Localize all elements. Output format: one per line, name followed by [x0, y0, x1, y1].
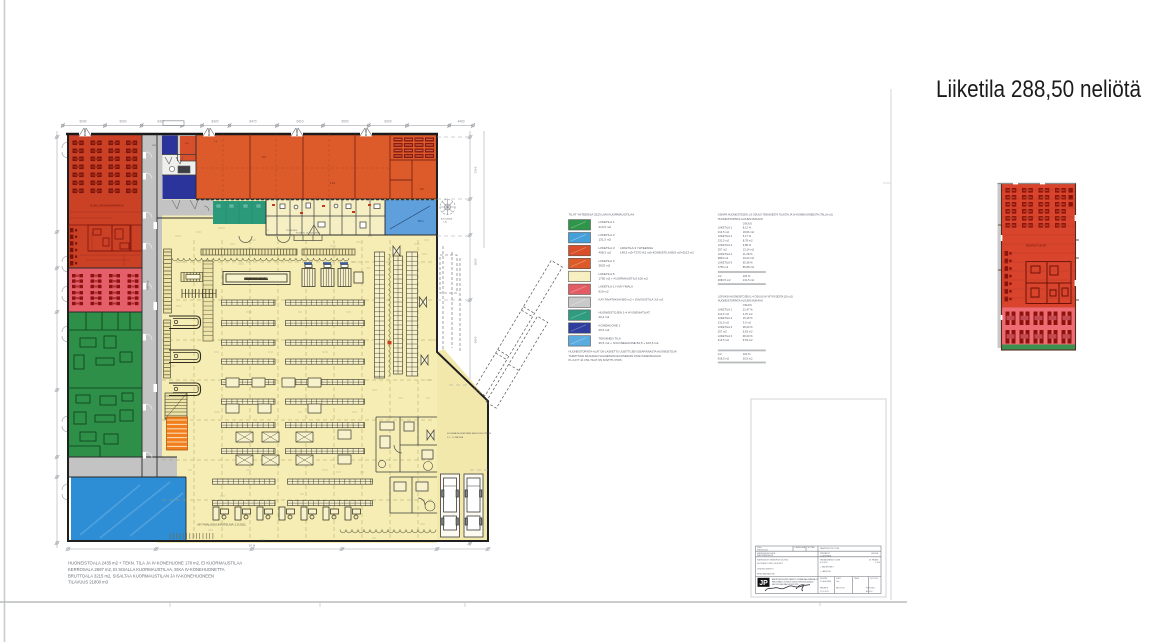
svg-text:20,5 m2: 20,5 m2: [599, 328, 610, 332]
svg-text:213,5 m2: 213,5 m2: [599, 225, 612, 229]
svg-text:JP: JP: [759, 580, 768, 587]
svg-text:AJOLUISKA: AJOLUISKA: [441, 218, 453, 221]
svg-text:K2: K2: [420, 187, 424, 191]
svg-text:LIIKETILA 1: LIIKETILA 1: [718, 225, 733, 229]
svg-text:9200: 9200: [474, 259, 478, 266]
svg-text:KUORMAUSLIIKENTEEN KATUJONO PI: KUORMAUSLIIKENTEEN KATUJONO PITUUS: [447, 432, 492, 435]
svg-text:SUUNN: SUUNN: [820, 578, 828, 580]
svg-text:85 m: 85 m: [418, 219, 424, 223]
svg-text:KESATILAT 140 AP: KESATILAT 140 AP: [1026, 245, 1047, 248]
svg-text:SPK: SPK: [185, 143, 190, 145]
svg-text:8200: 8200: [384, 120, 391, 124]
svg-text:20,2 m2: 20,2 m2: [599, 315, 610, 319]
svg-text:K3: K3: [262, 155, 266, 159]
svg-text:8420: 8420: [211, 120, 218, 124]
svg-text:100 %: 100 %: [743, 274, 751, 278]
svg-text:13,14 m2: 13,14 m2: [743, 247, 755, 251]
svg-text:131,5 m2: 131,5 m2: [718, 239, 730, 243]
svg-text:131,5 m2: 131,5 m2: [718, 321, 730, 325]
svg-text:LIIKETILA 1: LIIKETILA 1: [718, 307, 733, 311]
svg-text:5,63 m2: 5,63 m2: [743, 329, 753, 333]
svg-text:3823 m2: 3823 m2: [718, 256, 729, 260]
svg-text:1,2 - 1,2 METRIA: 1,2 - 1,2 METRIA: [447, 436, 464, 439]
svg-text:498,3 m2: 498,3 m2: [599, 251, 612, 255]
svg-text:LIIKETILA 2: LIIKETILA 2: [718, 316, 733, 320]
svg-text:1.61: 1.61: [330, 181, 336, 185]
svg-text:KAYTAVA: KAYTAVA: [147, 280, 150, 290]
svg-text:100 %: 100 %: [743, 352, 751, 356]
svg-text:918,5 m2: 918,5 m2: [718, 357, 730, 361]
svg-text:1:100: 1:100: [875, 562, 881, 564]
svg-text:HUONEISTOJEN OSUUDET: HUONEISTOJEN OSUUDET: [757, 563, 784, 565]
svg-text:213,5 m2: 213,5 m2: [718, 338, 730, 342]
svg-text:VSS: VSS: [152, 145, 157, 147]
svg-text:LEHTIA: LEHTIA: [871, 552, 879, 555]
svg-text:KAUPPAKESKUS: KAUPPAKESKUS: [757, 554, 774, 557]
svg-text:K-LUKU: K-LUKU: [820, 562, 828, 564]
svg-text:PL-KAYT JA VSS-TILAT ON SOVITT: PL-KAYT JA VSS-TILAT ON SOVITTU POIS: [569, 358, 622, 362]
svg-text:HUONEISTOPINTA-ALOJEN MUKAAN: HUONEISTOPINTA-ALOJEN MUKAAN: [718, 299, 763, 303]
svg-text:OSUUS: OSUUS: [743, 221, 752, 225]
svg-text:257 m2: 257 m2: [718, 247, 727, 251]
svg-text:85,88 m2: 85,88 m2: [743, 265, 755, 269]
svg-text:IS.SALI 140 ASIAKASPAIKKAA: IS.SALI 140 ASIAKASPAIKKAA: [90, 205, 124, 208]
svg-text:8410: 8410: [474, 167, 478, 174]
svg-text:LIIKETILA 3: LIIKETILA 3: [718, 325, 733, 329]
svg-text:m2: m2: [718, 274, 722, 278]
svg-text:LIIKETILA 4: LIIKETILA 4: [718, 252, 733, 256]
svg-text:15,18 %: 15,18 %: [743, 316, 753, 320]
svg-text:TEKNINEN TILA: TEKNINEN TILA: [599, 336, 621, 340]
svg-text:38,20 %: 38,20 %: [743, 325, 753, 329]
svg-text:J.LAHONEN: J.LAHONEN: [820, 580, 832, 583]
svg-text:PIIR NRO: PIIR NRO: [866, 588, 875, 590]
svg-text:LIIKETILA 2: LIIKETILA 2: [599, 233, 615, 237]
svg-text:15.9.2011: 15.9.2011: [820, 591, 830, 593]
svg-text:LIIKETILA 4: LIIKETILA 4: [718, 334, 733, 338]
svg-text:ERIB VARIKARTTA: ERIB VARIKARTTA: [757, 572, 775, 575]
svg-text:2660,5 m2: 2660,5 m2: [718, 278, 731, 282]
svg-text:18,06 m2: 18,06 m2: [743, 230, 755, 234]
svg-text:LIIKETILA 4: LIIKETILA 4: [599, 259, 615, 263]
svg-text:9,85 %: 9,85 %: [743, 243, 752, 247]
svg-text:HUONEISTOALA 2435 m2 + TEKN. T: HUONEISTOALA 2435 m2 + TEKN. TILA JA IV-…: [68, 561, 242, 566]
svg-text:KONEHUONE 1: KONEHUONE 1: [599, 323, 621, 327]
svg-text:m2: m2: [718, 352, 722, 356]
svg-text:040 555 6666 FAX 08 311 2222: 040 555 6666 FAX 08 311 2222: [772, 583, 799, 586]
svg-text:ARKKITEHTUURITOIMISTO JORMA PA: ARKKITEHTUURITOIMISTO JORMA PALORANTA OY: [772, 578, 819, 581]
svg-text:8,12 %: 8,12 %: [743, 225, 752, 229]
svg-text:TARVITTAVA RAJAAVAN VALISEINAN: TARVITTAVA RAJAAVAN VALISEINAN/ULKOSEINA…: [569, 354, 661, 358]
svg-text:3,0 m2: 3,0 m2: [743, 321, 752, 325]
svg-text:RAKENNUSTOIMENPIDE JA TIED: RAKENNUSTOIMENPIDE JA TIED: [757, 559, 789, 562]
svg-text:KERROSALA 2697 m2, EI SISALLA: KERROSALA 2697 m2, EI SISALLA KUORMAUSTI…: [68, 567, 225, 572]
svg-text:5000: 5000: [341, 120, 348, 124]
svg-text:OSUUS: OSUUS: [743, 303, 752, 307]
svg-text:65,38 %: 65,38 %: [743, 261, 753, 265]
svg-text:A3 100: A3 100: [866, 590, 873, 593]
svg-text:LOPUKSI HUONEISTOJEN 1-4 OSUUS: LOPUKSI HUONEISTOJEN 1-4 OSUUS HYVITYKSE…: [718, 294, 793, 298]
svg-text:BRUTTOALA 3215 m2, SISALTAA KU: BRUTTOALA 3215 m2, SISALTAA KUORMAUSTILA…: [68, 573, 214, 578]
svg-text:5,17 %: 5,17 %: [743, 234, 752, 238]
svg-text:PAIVAYS: PAIVAYS: [820, 587, 829, 590]
svg-text:OSINPA HUONEISTOJEN 1-5 OSUUS: OSINPA HUONEISTOJEN 1-5 OSUUS TEKNISESTA…: [718, 213, 833, 217]
svg-text:6,53 m2: 6,53 m2: [743, 338, 753, 342]
svg-text:6410: 6410: [296, 120, 303, 124]
svg-text:1750 m2 + KUORMAUSTILA 100 m2: 1750 m2 + KUORMAUSTILA 100 m2: [599, 276, 649, 280]
svg-text:LIIKETILA 3: LIIKETILA 3: [718, 243, 733, 247]
svg-text:131,5 m2: 131,5 m2: [599, 238, 612, 242]
svg-text:LIIKETILA 3 YHTEENSA: LIIKETILA 3 YHTEENSA: [620, 246, 653, 250]
svg-text:50 M: 50 M: [249, 544, 256, 548]
svg-text:MUUTOS: MUUTOS: [836, 588, 845, 590]
svg-text:4,70 m2: 4,70 m2: [743, 312, 753, 316]
svg-text:Liiketila 288,50 neliötä: Liiketila 288,50 neliötä: [936, 76, 1142, 103]
svg-text:HUONEISTOPINTA-ALOJEN MUKAAN: HUONEISTOPINTA-ALOJEN MUKAAN: [718, 217, 763, 221]
svg-text:LIIKETILA 5: LIIKETILA 5: [599, 272, 615, 276]
svg-text:131,5 m2: 131,5 m2: [743, 278, 755, 282]
svg-text:4400: 4400: [457, 120, 464, 124]
svg-text:8470: 8470: [249, 120, 256, 124]
svg-text:19,24 m2: 19,24 m2: [743, 256, 755, 260]
svg-text:8,78 m2: 8,78 m2: [743, 239, 753, 243]
svg-text:38,20 %: 38,20 %: [743, 334, 753, 338]
svg-text:1750 m2: 1750 m2: [718, 265, 729, 269]
svg-text:HUONEISTOPINTA-ALAT ON LASKETT: HUONEISTOPINTA-ALAT ON LASKETTU UUSITTUJ…: [569, 350, 678, 354]
svg-text:PIIRUSTUS: PIIRUSTUS: [757, 550, 768, 552]
svg-text:3823 m2: 3823 m2: [599, 264, 611, 268]
svg-text:LASKELMA: LASKELMA: [795, 546, 806, 549]
svg-text:LIIKETILA 5: LIIKETILA 5: [718, 261, 733, 265]
svg-text:LIIKETILA 1: LIIKETILA 1: [599, 220, 615, 224]
svg-text:PAAPIIRUSTUS TMS: PAAPIIRUSTUS TMS: [820, 547, 840, 550]
svg-text:257 m2: 257 m2: [718, 329, 727, 333]
svg-text:TARK: TARK: [854, 577, 860, 580]
svg-text:PALVELUTISKI LIHA KALA: PALVELUTISKI LIHA KALA: [245, 278, 269, 281]
svg-text:148,5 m2+TSTO 8,5 m2+KONEISTIL: 148,5 m2+TSTO 8,5 m2+KONEISTILA 88,9 m2=…: [620, 251, 694, 255]
svg-text:J.LAHONEN: J.LAHONEN: [820, 554, 832, 557]
svg-text:619 m2: 619 m2: [599, 289, 609, 293]
svg-text:PIIRT: PIIRT: [836, 578, 842, 580]
svg-text:+ RAKENTEET: + RAKENTEET: [820, 566, 835, 569]
svg-text:LIIKETILA 2: LIIKETILA 2: [718, 234, 733, 238]
svg-text:LIIKETILA 1 H MYYMALA: LIIKETILA 1 H MYYMALA: [599, 285, 634, 289]
svg-text:8400: 8400: [474, 337, 478, 344]
svg-text:KAYTAVATAKAA 983 m2 + SIIVOUST: KAYTAVATAKAA 983 m2 + SIIVOUSTILA 3,6 m2: [599, 298, 664, 302]
svg-text:HYV KS: HYV KS: [871, 578, 879, 580]
svg-text:213,5 m2: 213,5 m2: [718, 230, 730, 234]
svg-text:21,47 %: 21,47 %: [743, 307, 753, 311]
svg-text:5040: 5040: [79, 120, 86, 124]
svg-text:KUIVAUS. TK KASVIKSET: KUIVAUS. TK KASVIKSET: [296, 232, 321, 235]
svg-text:LIIKEHUONEISTO: LIIKEHUONEISTO: [757, 569, 774, 571]
svg-text:MITTAK: MITTAK: [808, 546, 816, 549]
svg-text:+ LAAJUUS: + LAAJUUS: [820, 570, 831, 573]
svg-text:TILAVUUS 21800 m3: TILAVUUS 21800 m3: [68, 580, 109, 585]
svg-text:5000: 5000: [119, 120, 126, 124]
svg-text:HUONEISTOJEN 1-4 HYGIENIATILAT: HUONEISTOJEN 1-4 HYGIENIATILAT: [599, 311, 651, 315]
svg-text:36,5 m2 + IV-KONEHUONE 84,5 +: 36,5 m2 + IV-KONEHUONE 84,5 + 103,5 m2: [599, 341, 659, 345]
svg-text:MYYMALASUUNNITELMA 1.9.2011: MYYMALASUUNNITELMA 1.9.2011: [198, 523, 247, 527]
svg-text:TILAT YHTEENSA 3223 LKM KUORMA: TILAT YHTEENSA 3223 LKM KUORMAUSTILAA: [569, 213, 635, 217]
svg-text:PELTOKATU 25 90120 OULU PUH: PELTOKATU 25 90120 OULU PUH 0400-000000: [772, 581, 813, 584]
svg-text:11,28 %: 11,28 %: [743, 252, 753, 256]
svg-text:LIIKETILA 3: LIIKETILA 3: [599, 246, 615, 250]
svg-text:213,5 m2: 213,5 m2: [718, 312, 730, 316]
svg-text:20,5 m2: 20,5 m2: [743, 357, 753, 361]
